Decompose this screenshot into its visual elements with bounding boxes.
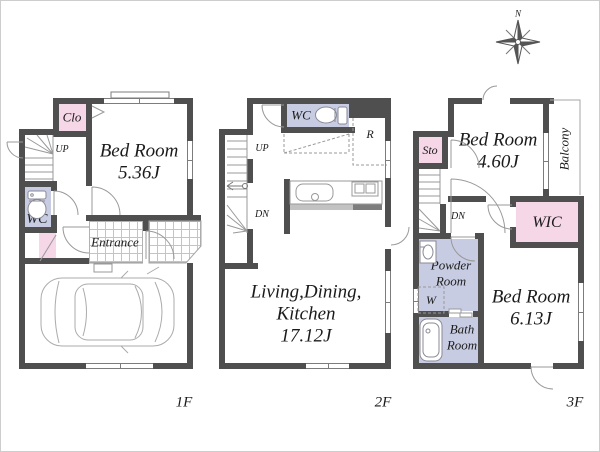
wall [553, 363, 584, 369]
room-label-bedroom1-3f: Bed Room [459, 131, 538, 150]
wall [473, 311, 484, 317]
door-opening [482, 98, 510, 104]
wall [413, 233, 451, 239]
wall [413, 163, 448, 169]
door-opening [531, 363, 553, 369]
window [413, 289, 419, 313]
door-opening [510, 207, 516, 227]
floor-plan-canvas: Clo UP WC Bed Room 5.36J Entrance 1F WC [0, 0, 600, 452]
room-label-balcony: Balcony [558, 128, 571, 171]
floor-label-3f: 3F [567, 396, 584, 411]
wall [478, 233, 484, 369]
wall [510, 242, 584, 248]
room-area-bedroom1-3f: 4.60J [477, 153, 519, 172]
wall [440, 204, 446, 233]
compass-north-label: N [515, 10, 521, 19]
floor-3f-plan: Sto Bed Room 4.60J Balcony DN WIC Powder… [1, 1, 599, 451]
window [578, 283, 584, 341]
wall [510, 227, 516, 242]
room-label-bath-line2: Room [447, 339, 477, 352]
room-label-wic: WIC [532, 215, 561, 231]
room-label-powder-line1: Powder [431, 259, 471, 272]
wall [510, 196, 584, 202]
room-area-bedroom2-3f: 6.13J [510, 310, 552, 329]
stairs-down-label-3f: DN [451, 212, 465, 222]
room-label-bath-line1: Bath [450, 323, 475, 336]
room-label-storage-3f: Sto [422, 144, 437, 156]
wall [475, 233, 484, 239]
washer-space-label: W [426, 294, 436, 306]
wall [413, 363, 531, 369]
room-label-powder-line2: Room [436, 275, 466, 288]
balcony-window [543, 133, 549, 189]
wall [448, 104, 454, 137]
wall [413, 137, 419, 369]
room-label-bedroom2-3f: Bed Room [492, 288, 571, 307]
wall [448, 196, 486, 202]
